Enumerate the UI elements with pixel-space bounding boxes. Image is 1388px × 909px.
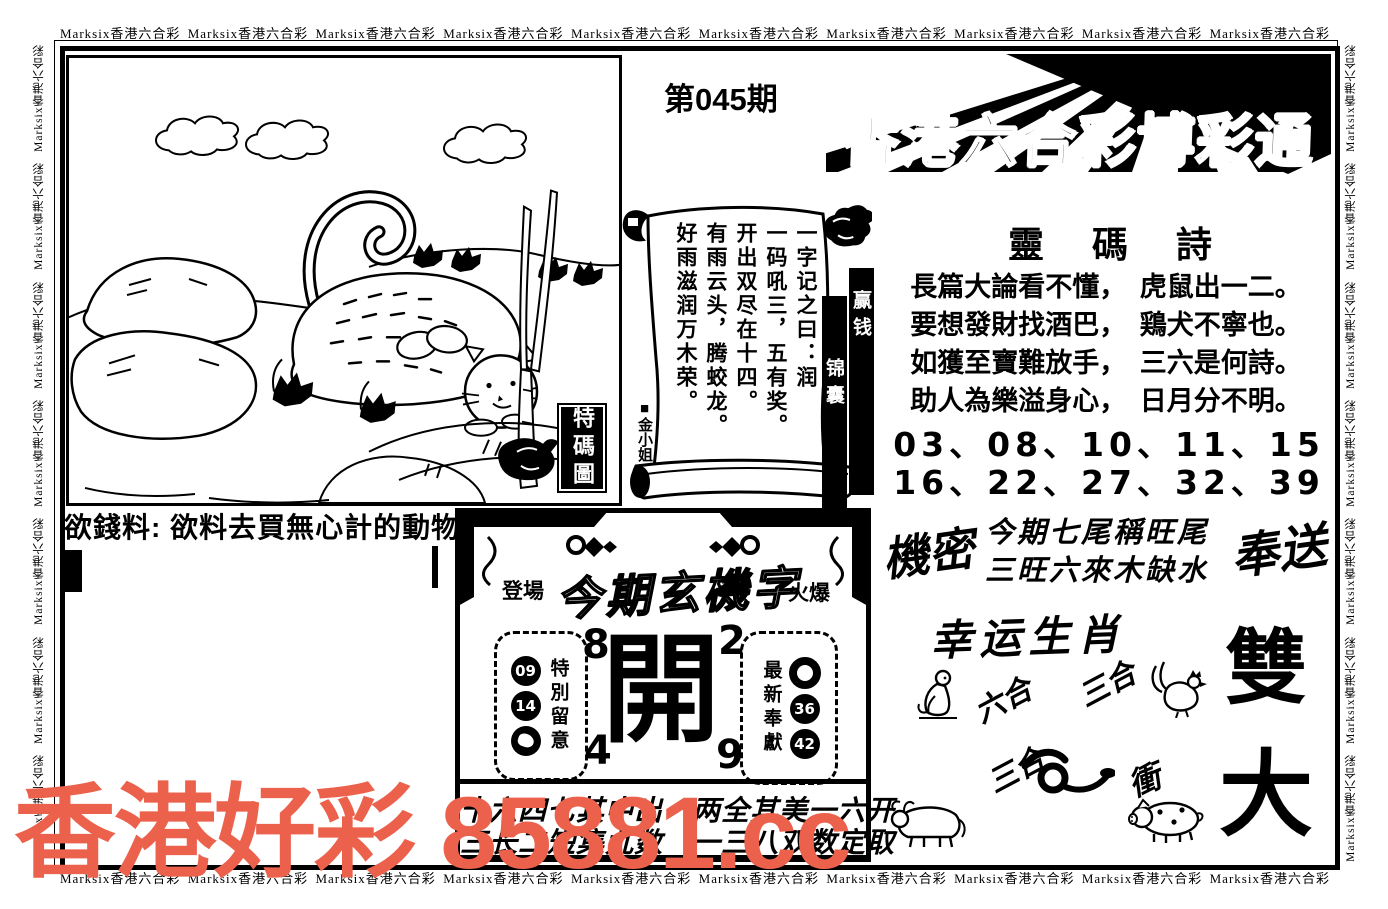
attention-circles: 09 14 bbox=[511, 651, 541, 761]
issue-number: 第045期 bbox=[664, 74, 778, 119]
lottery-flyer-page: Marksix香港六合彩Marksix香港六合彩Marksix香港六合彩Mark… bbox=[0, 0, 1388, 909]
poem-line: 如獲至寶難放手， 三六是何詩。 bbox=[880, 344, 1332, 382]
scroll-col: 一码吼三，五有奖。 bbox=[765, 222, 786, 447]
site-watermark: 香港好彩 85881.cc bbox=[14, 782, 850, 884]
border-text: Marksix香港六合彩 bbox=[1210, 868, 1330, 887]
scroll-col: 开出双尽在十四。 bbox=[735, 222, 756, 447]
stage-label: 登場 bbox=[502, 575, 544, 605]
border-text: Marksix香港六合彩 bbox=[1210, 23, 1330, 42]
border-text: Marksix香港六合彩 bbox=[60, 23, 180, 42]
special-pic-label: 特碼圖 bbox=[557, 403, 607, 493]
gift-label: 奉送 bbox=[1226, 506, 1331, 589]
border-right: Marksix香港六合彩Marksix香港六合彩Marksix香港六合彩Mark… bbox=[1342, 44, 1360, 862]
number-ball: 14 bbox=[511, 691, 541, 721]
border-text: Marksix香港六合彩 bbox=[954, 23, 1074, 42]
border-text: Marksix香港六合彩 bbox=[443, 23, 563, 42]
border-text: Marksix香港六合彩 bbox=[1343, 44, 1359, 152]
number-ball: 09 bbox=[511, 656, 541, 686]
numbers-row-1: 03、08、10、11、15 bbox=[884, 426, 1334, 464]
big-char-double: 雙 bbox=[1218, 628, 1314, 710]
leopard-illustration bbox=[69, 58, 619, 503]
numbers-row-2: 16、22、27、32、39 bbox=[884, 464, 1334, 502]
lucky-numbers: 03、08、10、11、15 16、22、27、32、39 bbox=[884, 426, 1334, 502]
border-text: Marksix香港六合彩 bbox=[699, 23, 819, 42]
mystery-title: 今期玄機字 bbox=[554, 551, 802, 629]
poem-line: 長篇大論看不懂， 虎鼠出一二。 bbox=[880, 268, 1332, 306]
border-text: Marksix香港六合彩 bbox=[1343, 517, 1359, 625]
ink-animal-icon bbox=[498, 438, 559, 480]
latest-offer-label: 最新奉獻 bbox=[758, 660, 785, 756]
border-text: Marksix香港六合彩 bbox=[31, 399, 47, 507]
border-text: Marksix香港六合彩 bbox=[31, 636, 47, 744]
border-text: Marksix香港六合彩 bbox=[31, 162, 47, 270]
border-text: Marksix香港六合彩 bbox=[826, 23, 946, 42]
poem-title: 靈碼詩 bbox=[890, 216, 1330, 268]
poem-line: 要想發財找酒巴， 鶏犬不寧也。 bbox=[880, 306, 1332, 344]
scroll-col: 好雨滋润万木荣。 bbox=[675, 222, 696, 447]
scroll-col: 一字记之曰：润 bbox=[795, 222, 816, 447]
number-ball: 42 bbox=[790, 729, 820, 759]
border-text: Marksix香港六合彩 bbox=[1082, 868, 1202, 887]
monkey-icon bbox=[913, 668, 961, 720]
masthead-title: 香港六合彩博彩通 bbox=[825, 96, 1333, 178]
black-square-mark bbox=[64, 550, 82, 592]
border-text: Marksix香港六合彩 bbox=[1343, 399, 1359, 507]
masthead-banner: 香港六合彩博彩通 bbox=[826, 54, 1331, 176]
money-clue-text: 欲錢料: 欲料去買無心計的動物 bbox=[64, 506, 460, 546]
ox-icon bbox=[888, 795, 968, 851]
border-text: Marksix香港六合彩 bbox=[1343, 281, 1359, 389]
border-text: Marksix香港六合彩 bbox=[315, 23, 435, 42]
tip-scroll: 一字记之曰：润 一码吼三，五有奖。 开出双尽在十四。 有雨云头，腾蛟龙。 好雨滋… bbox=[618, 198, 874, 510]
border-text: Marksix香港六合彩 bbox=[1343, 636, 1359, 744]
scroll-author: ■金小姐 bbox=[634, 400, 655, 462]
mystery-character: 開 bbox=[602, 633, 718, 751]
lucky-zodiac-title: 幸运生肖 bbox=[929, 601, 1127, 669]
big-char-big: 大 bbox=[1218, 748, 1314, 842]
border-text: Marksix香港六合彩 bbox=[1343, 162, 1359, 270]
border-text: Marksix香港六合彩 bbox=[31, 281, 47, 389]
special-attention-label: 特別留意 bbox=[545, 658, 572, 754]
poem-lines: 長篇大論看不懂， 虎鼠出一二。 要想發財找酒巴， 鶏犬不寧也。 如獲至寶難放手，… bbox=[880, 268, 1332, 420]
offer-circles: 36 42 bbox=[789, 652, 821, 764]
border-text: Marksix香港六合彩 bbox=[954, 868, 1074, 887]
snake-icon bbox=[1015, 736, 1115, 802]
secret-line-2: 三旺六來木缺水 bbox=[985, 552, 1209, 590]
special-attention-box: 09 14 特別留意 bbox=[494, 631, 588, 781]
secret-line-1: 今期七尾稱旺尾 bbox=[985, 514, 1209, 552]
latest-offer-box: 最新奉獻 36 42 bbox=[740, 631, 838, 785]
secret-lines: 今期七尾稱旺尾 三旺六來木缺水 bbox=[985, 514, 1209, 590]
poem-line: 助人為樂溢身心， 日月分不明。 bbox=[880, 382, 1332, 420]
black-bar-mark bbox=[432, 546, 438, 588]
border-text: Marksix香港六合彩 bbox=[1082, 23, 1202, 42]
scroll-col: 有雨云头，腾蛟龙。 bbox=[705, 222, 726, 447]
number-ball-blank bbox=[789, 657, 821, 689]
border-left: Marksix香港六合彩Marksix香港六合彩Marksix香港六合彩Mark… bbox=[30, 44, 48, 862]
number-ball-masked bbox=[511, 726, 541, 756]
rooster-icon bbox=[1148, 660, 1208, 718]
border-text: Marksix香港六合彩 bbox=[571, 23, 691, 42]
special-code-picture: 特碼圖 bbox=[66, 55, 622, 506]
secret-label: 機密 bbox=[878, 512, 978, 590]
border-text: Marksix香港六合彩 bbox=[31, 44, 47, 152]
border-top: Marksix香港六合彩Marksix香港六合彩Marksix香港六合彩Mark… bbox=[60, 24, 1330, 40]
tag-win-money: 赢钱 bbox=[849, 268, 874, 495]
border-text: Marksix香港六合彩 bbox=[1343, 754, 1359, 862]
number-ball: 36 bbox=[790, 694, 820, 724]
border-text: Marksix香港六合彩 bbox=[188, 23, 308, 42]
hot-label: 火爆 bbox=[788, 577, 830, 607]
pig-icon bbox=[1128, 792, 1206, 844]
ink-sketch-icon bbox=[816, 202, 872, 260]
border-text: Marksix香港六合彩 bbox=[31, 517, 47, 625]
